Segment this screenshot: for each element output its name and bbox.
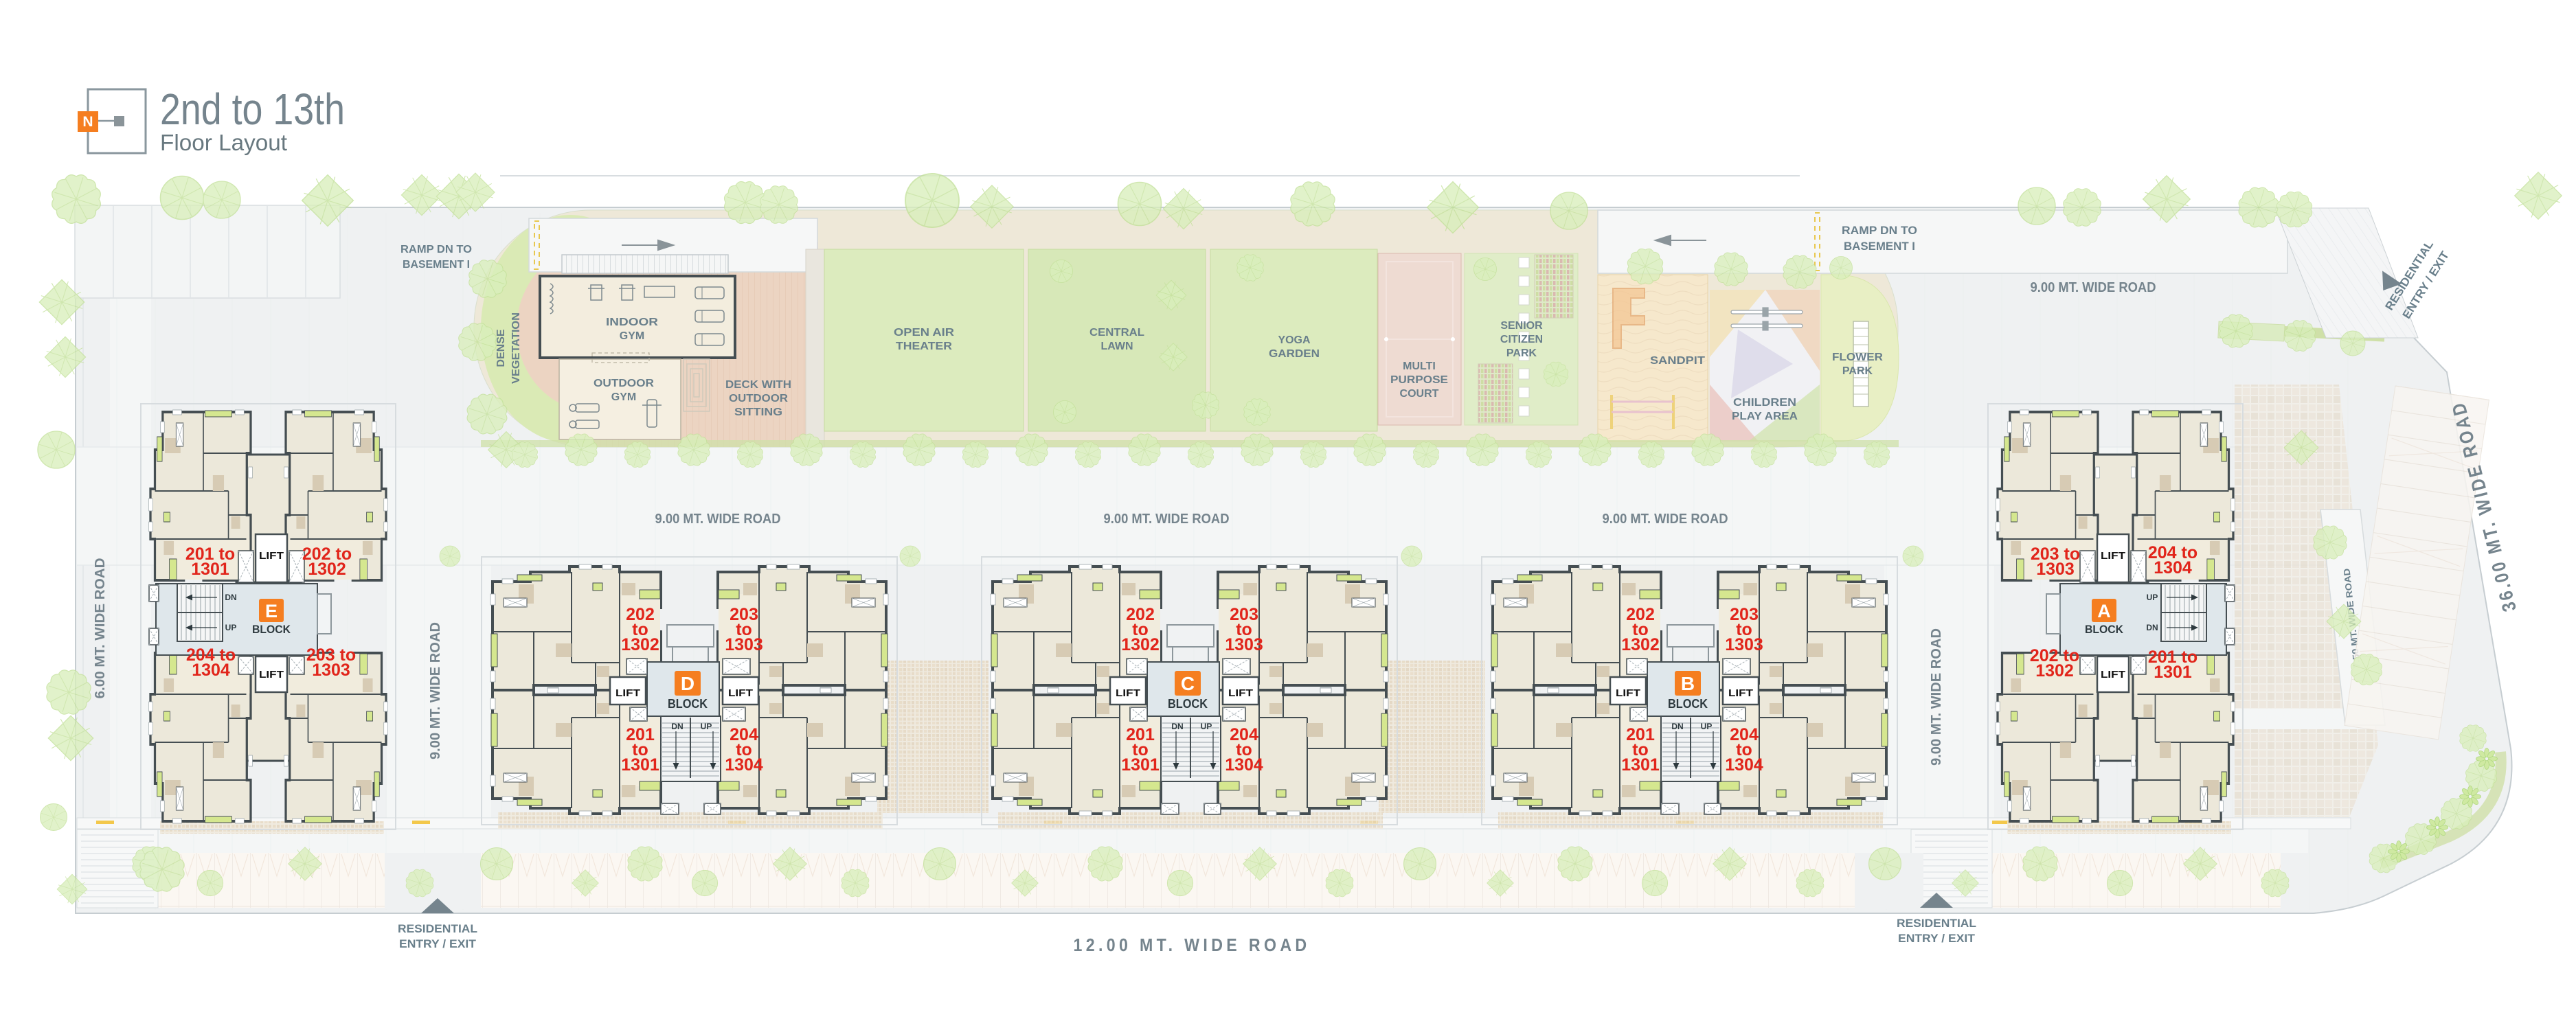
svg-text:B: B	[1681, 673, 1695, 694]
svg-text:BLOCK: BLOCK	[1668, 697, 1708, 711]
svg-text:9.00 MT. WIDE ROAD: 9.00 MT. WIDE ROAD	[2031, 280, 2156, 295]
svg-text:LIFT: LIFT	[615, 687, 640, 699]
svg-text:1301: 1301	[621, 755, 659, 775]
svg-text:LIFT: LIFT	[1116, 687, 1140, 699]
svg-text:BLOCK: BLOCK	[2085, 623, 2124, 636]
svg-text:COURT: COURT	[1400, 388, 1439, 400]
svg-text:DN: DN	[2146, 623, 2158, 632]
svg-text:RAMP DN TO: RAMP DN TO	[1842, 224, 1917, 237]
svg-text:BLOCK: BLOCK	[668, 697, 708, 711]
svg-text:PARK: PARK	[1506, 347, 1537, 359]
svg-text:UP: UP	[1701, 722, 1713, 731]
svg-text:LIFT: LIFT	[728, 687, 753, 699]
svg-text:2nd to 13th: 2nd to 13th	[160, 84, 345, 134]
svg-text:VEGETATION: VEGETATION	[510, 312, 522, 384]
svg-text:YOGA: YOGA	[1278, 334, 1311, 346]
svg-text:1304: 1304	[2154, 558, 2192, 577]
svg-text:RESIDENTIAL: RESIDENTIAL	[1897, 917, 1976, 930]
svg-text:1304: 1304	[1225, 755, 1263, 775]
svg-text:LIFT: LIFT	[259, 550, 284, 562]
svg-text:DN: DN	[1671, 722, 1683, 731]
svg-text:1301: 1301	[2154, 663, 2192, 682]
svg-text:CENTRAL: CENTRAL	[1089, 327, 1144, 339]
svg-text:UP: UP	[701, 722, 712, 731]
svg-text:GYM: GYM	[620, 330, 644, 342]
svg-text:FLOWER: FLOWER	[1832, 352, 1883, 363]
svg-text:6.00 MT. WIDE ROAD: 6.00 MT. WIDE ROAD	[93, 558, 108, 699]
svg-text:E: E	[265, 601, 278, 621]
svg-text:SANDPIT: SANDPIT	[1650, 355, 1705, 367]
svg-text:DENSE: DENSE	[495, 329, 507, 367]
svg-text:GARDEN: GARDEN	[1269, 348, 1320, 360]
svg-text:9.00 MT. WIDE ROAD: 9.00 MT. WIDE ROAD	[428, 622, 443, 759]
svg-text:1302: 1302	[1121, 635, 1160, 654]
svg-text:BLOCK: BLOCK	[252, 623, 291, 636]
svg-text:CITIZEN: CITIZEN	[1500, 334, 1543, 345]
svg-text:1303: 1303	[1225, 635, 1263, 654]
svg-text:ENTRY / EXIT: ENTRY / EXIT	[1898, 932, 1976, 945]
svg-text:RESIDENTIAL: RESIDENTIAL	[398, 922, 477, 935]
svg-text:CHILDREN: CHILDREN	[1733, 397, 1796, 409]
svg-text:BASEMENT I: BASEMENT I	[1844, 240, 1915, 253]
svg-text:LAWN: LAWN	[1100, 341, 1133, 352]
svg-text:1301: 1301	[191, 560, 229, 579]
svg-text:9.00 MT. WIDE ROAD: 9.00 MT. WIDE ROAD	[655, 512, 781, 527]
svg-text:RAMP DN TO: RAMP DN TO	[400, 244, 472, 255]
svg-text:THEATER: THEATER	[896, 341, 952, 352]
svg-text:1301: 1301	[1621, 755, 1660, 775]
svg-text:1304: 1304	[192, 661, 230, 680]
svg-text:OPEN AIR: OPEN AIR	[894, 327, 955, 339]
svg-text:BASEMENT I: BASEMENT I	[403, 259, 470, 271]
svg-text:LIFT: LIFT	[1616, 687, 1640, 699]
svg-text:1301: 1301	[1121, 755, 1160, 775]
svg-text:SENIOR: SENIOR	[1500, 320, 1543, 332]
svg-text:1304: 1304	[725, 755, 763, 775]
svg-text:MULTI: MULTI	[1403, 360, 1436, 372]
svg-text:C: C	[1181, 673, 1195, 694]
svg-text:1302: 1302	[308, 560, 346, 579]
svg-text:1304: 1304	[1725, 755, 1763, 775]
svg-text:LIFT: LIFT	[2101, 669, 2125, 680]
svg-text:DN: DN	[225, 593, 236, 602]
svg-text:PARK: PARK	[1842, 365, 1873, 377]
svg-text:1302: 1302	[621, 635, 659, 654]
svg-text:Floor Layout: Floor Layout	[160, 130, 287, 155]
svg-text:1302: 1302	[1621, 635, 1660, 654]
svg-text:1303: 1303	[2036, 560, 2075, 579]
svg-text:INDOOR: INDOOR	[606, 317, 659, 328]
svg-text:UP: UP	[1201, 722, 1212, 731]
svg-text:LIFT: LIFT	[259, 669, 284, 680]
svg-text:9.00 MT. WIDE ROAD: 9.00 MT. WIDE ROAD	[1104, 512, 1230, 527]
svg-text:1303: 1303	[1725, 635, 1763, 654]
svg-text:12.00 MT. WIDE ROAD: 12.00 MT. WIDE ROAD	[1074, 935, 1311, 955]
svg-text:1303: 1303	[312, 661, 350, 680]
svg-text:DECK WITH: DECK WITH	[725, 379, 791, 391]
svg-text:1302: 1302	[2035, 661, 2074, 680]
svg-text:OUTDOOR: OUTDOOR	[594, 378, 654, 389]
svg-text:OUTDOOR: OUTDOOR	[729, 393, 788, 404]
svg-text:1303: 1303	[725, 635, 763, 654]
svg-text:UP: UP	[225, 623, 237, 632]
svg-text:PURPOSE: PURPOSE	[1390, 374, 1448, 386]
svg-text:9.00 MT. WIDE ROAD: 9.00 MT. WIDE ROAD	[1929, 628, 1944, 766]
svg-text:LIFT: LIFT	[1728, 687, 1753, 699]
svg-text:LIFT: LIFT	[1228, 687, 1253, 699]
svg-text:DN: DN	[1171, 722, 1183, 731]
svg-text:ENTRY / EXIT: ENTRY / EXIT	[399, 937, 477, 950]
svg-text:9.00 MT. WIDE ROAD: 9.00 MT. WIDE ROAD	[1603, 512, 1728, 527]
svg-text:A: A	[2097, 601, 2111, 621]
svg-text:UP: UP	[2147, 593, 2158, 602]
svg-text:GYM: GYM	[611, 391, 636, 403]
svg-text:DN: DN	[671, 722, 683, 731]
svg-text:N: N	[82, 114, 93, 130]
svg-text:PLAY AREA: PLAY AREA	[1732, 411, 1798, 422]
svg-text:LIFT: LIFT	[2101, 550, 2125, 562]
svg-text:D: D	[681, 673, 694, 694]
svg-text:BLOCK: BLOCK	[1168, 697, 1208, 711]
svg-text:SITTING: SITTING	[734, 407, 782, 418]
